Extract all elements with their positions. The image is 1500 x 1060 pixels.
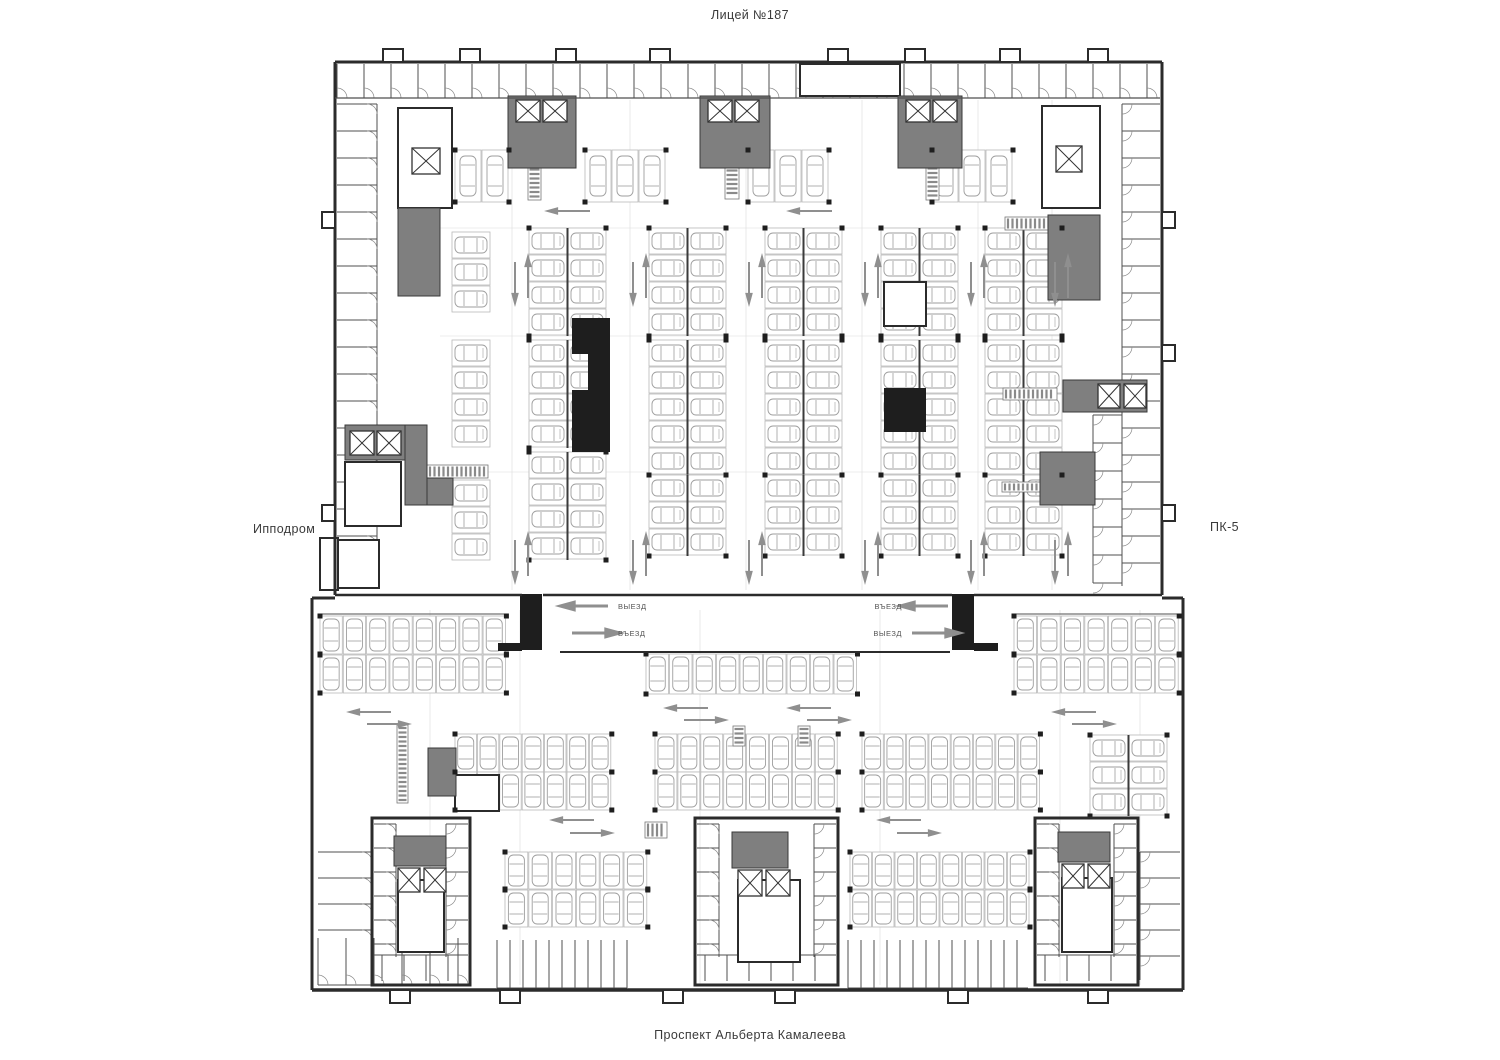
ramp-exit-label-left: ВЫЕЗД — [618, 602, 647, 611]
ramp-exit-label-right: ВЫЕЗД — [873, 629, 902, 638]
floor-plan: Лицей №187 Ипподром ПК-5 Проспект Альбер… — [0, 0, 1500, 1060]
layer-txt: ВЫЕЗДВЪЕЗДВЪЕЗДВЫЕЗД — [618, 602, 902, 638]
ramp-entrance-label-right: ВЪЕЗД — [875, 602, 902, 611]
ramp-entrance-label-left: ВЪЕЗД — [618, 629, 645, 638]
floor-plan-svg: ВЫЕЗДВЪЕЗДВЪЕЗДВЫЕЗД — [0, 0, 1500, 1060]
